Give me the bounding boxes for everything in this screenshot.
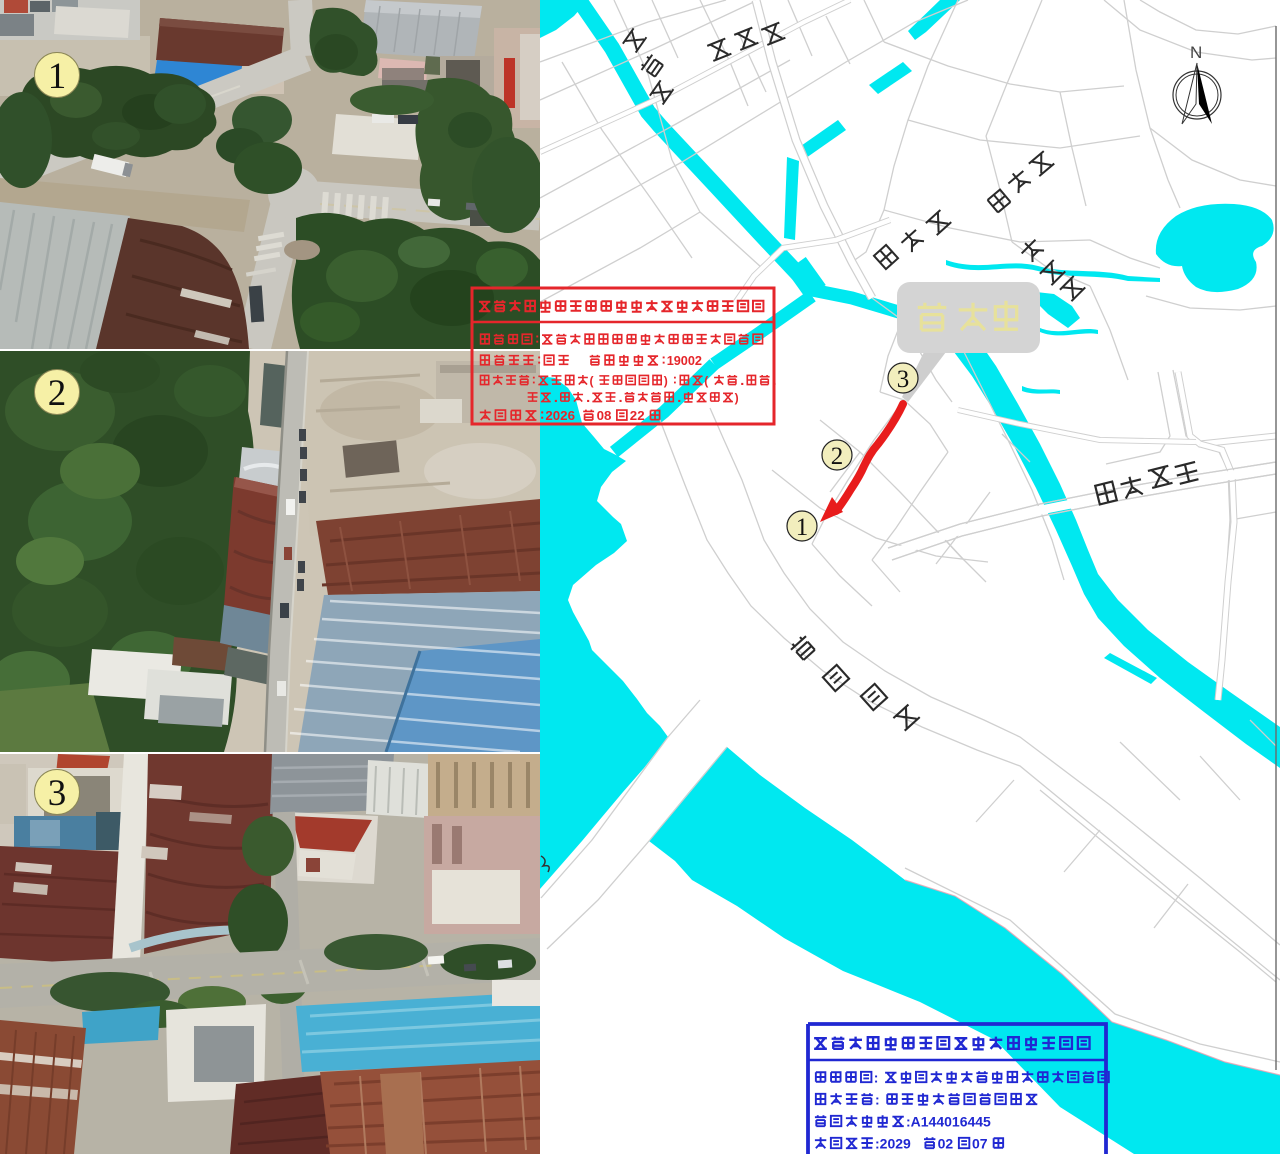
svg-text:): ) [735,391,739,405]
svg-text:07: 07 [972,1136,988,1152]
svg-text:08: 08 [597,408,612,423]
svg-text:1: 1 [48,56,67,97]
svg-text:1: 1 [796,514,809,541]
svg-text:3: 3 [897,366,910,393]
svg-text:3: 3 [48,773,67,814]
svg-text:2: 2 [48,373,67,414]
svg-text::A144016445: :A144016445 [906,1114,991,1130]
svg-text:N: N [1190,43,1202,62]
svg-text:19002: 19002 [667,354,702,368]
svg-text:(: ( [704,374,709,388]
svg-text::: : [874,1070,879,1086]
svg-text:2: 2 [831,443,844,470]
svg-text:22: 22 [630,408,645,423]
svg-text:2026: 2026 [545,408,575,423]
svg-text::: : [875,1092,880,1108]
svg-text:02: 02 [938,1136,954,1152]
svg-text::2029: :2029 [875,1136,911,1152]
svg-text:): ) [664,374,668,388]
svg-text:(: ( [590,374,595,388]
